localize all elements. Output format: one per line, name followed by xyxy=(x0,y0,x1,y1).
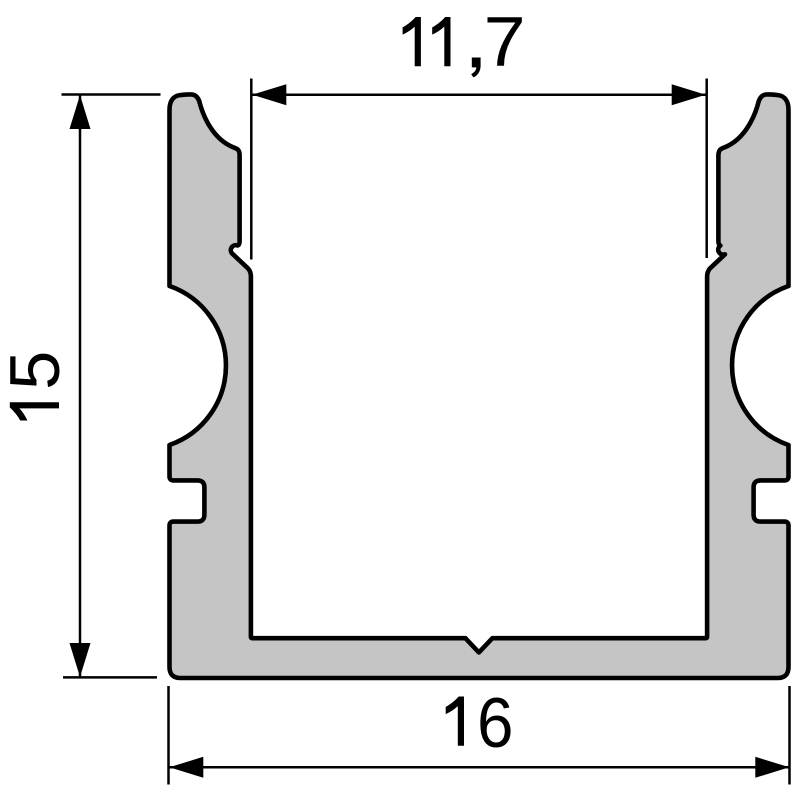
svg-text:6: 6 xyxy=(477,683,514,762)
svg-text:5: 5 xyxy=(0,351,74,390)
svg-text:7: 7 xyxy=(484,2,526,81)
